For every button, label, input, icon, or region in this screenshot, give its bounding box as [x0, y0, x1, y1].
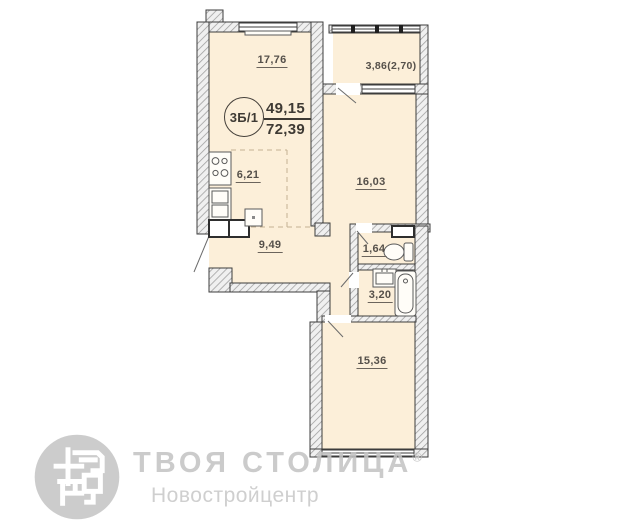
- floorplan-drawing: [0, 0, 631, 528]
- room1-fill: [323, 94, 416, 226]
- wall-room2-left: [310, 322, 322, 449]
- wall-left-lower-block: [209, 268, 232, 292]
- area-fraction: 49,15 72,39: [264, 100, 311, 138]
- stove-burner-icon: [212, 158, 219, 165]
- total-area-value: 72,39: [264, 120, 311, 138]
- room-label-wc: 1,64: [362, 243, 387, 257]
- wall-right-lower: [415, 226, 428, 455]
- wall-divider-end: [315, 223, 330, 236]
- floorplan-canvas: 17,76 3,86(2,70) 6,21 16,03 9,49 1,64 3,…: [0, 0, 631, 528]
- room-label-bathroom: 3,20: [368, 289, 393, 303]
- apartment-type-badge: 3Б/1: [224, 97, 264, 137]
- wall-right-upper: [416, 94, 428, 226]
- kitchen-sink-bowl-icon: [212, 205, 228, 217]
- room-label-room2: 15,36: [356, 355, 387, 369]
- cabinet-mark: [252, 216, 255, 219]
- bath-door-opening: [349, 272, 359, 288]
- kitchen-sink-bowl-icon: [212, 191, 228, 203]
- wc-door-opening: [356, 223, 372, 233]
- room-label-loggia: 3,86(2,70): [365, 61, 418, 74]
- wall-hall-bottom: [230, 283, 330, 292]
- washbasin-bowl-icon: [376, 273, 393, 284]
- entrance-door-swing: [194, 236, 209, 272]
- glazing-mullion-icon: [399, 25, 403, 33]
- room-label-kitchen: 6,21: [236, 169, 261, 183]
- apartment-type-label: 3Б/1: [230, 110, 259, 125]
- wall-left-upper: [197, 22, 209, 234]
- room-label-living: 17,76: [256, 54, 287, 68]
- loggia-fill: [333, 33, 420, 84]
- room-label-room1: 16,03: [355, 176, 386, 190]
- wall-pilaster: [206, 10, 223, 23]
- wc-shelf-icon: [392, 226, 414, 237]
- stove-burner-icon: [213, 170, 218, 175]
- glazing-mullion-icon: [351, 25, 355, 33]
- toilet-tank-icon: [404, 243, 413, 261]
- living-area-value: 49,15: [264, 100, 311, 120]
- stove-burner-icon: [221, 170, 228, 177]
- radiator-icon: [245, 31, 291, 35]
- stove-burner-icon: [222, 158, 227, 163]
- stove-icon: [209, 152, 231, 185]
- glazing-mullion-icon: [375, 25, 379, 33]
- room-label-hall: 9,49: [258, 239, 283, 253]
- wall-divider: [311, 22, 323, 226]
- room2-fill: [322, 322, 415, 449]
- toilet-bowl-icon: [384, 244, 404, 260]
- bathtub-drain-icon: [404, 279, 408, 283]
- wall-loggia-right: [420, 25, 428, 85]
